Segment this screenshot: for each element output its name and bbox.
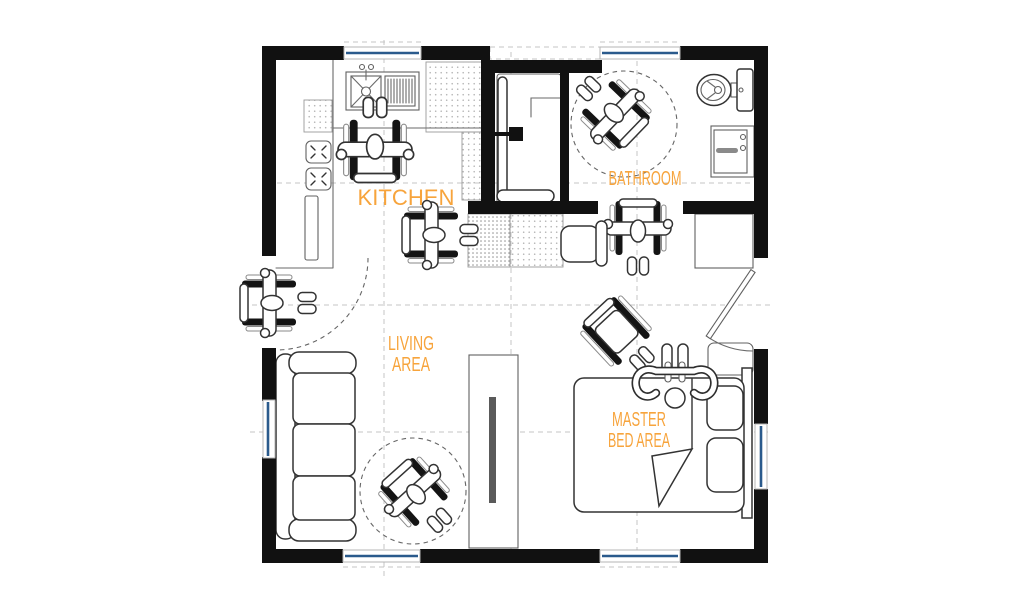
window-top-bathroom [600,47,680,59]
desk-chair [561,221,607,266]
window-bottom-living [343,550,420,562]
pillow [707,438,743,492]
sofa [276,352,356,541]
terrace-door [706,270,755,351]
living-area-label-line2: AREA [392,354,430,376]
living-area-label-line1: LIVING [388,333,434,355]
dresser [695,214,753,268]
window-right [755,424,767,489]
wheelchair-user-desk [402,201,478,270]
kitchen-label: KITCHEN [358,185,455,210]
vanity-sink [711,126,754,177]
desk [510,214,563,267]
tv-screen [489,397,496,503]
cooktop [306,141,331,190]
toilet [697,69,753,111]
wheelchair-user-entry [240,269,316,338]
entry-area [240,258,368,350]
living-area: LIVING AREA [276,333,518,550]
wheelchair-user-living [369,447,471,550]
window-bottom-bedroom [600,550,680,562]
bathroom-label: BATHROOM [609,168,682,190]
kitchen-area: KITCHEN [276,60,484,268]
window-top-kitchen [344,47,421,59]
master-bed-label-line2: BED AREA [608,430,670,452]
entry-door-swing [276,258,368,350]
wheelchair-user-bathroom-doorway [604,199,673,275]
drainboard [385,76,415,106]
shower-bench [497,190,554,202]
shower-door [498,77,507,199]
master-bed-label-line1: MASTER [612,409,666,431]
shower-area [495,74,561,204]
floor-plan-image: KITCHEN BATHR [0,0,1024,616]
window-left [263,400,275,458]
tv-cabinet [469,355,518,548]
